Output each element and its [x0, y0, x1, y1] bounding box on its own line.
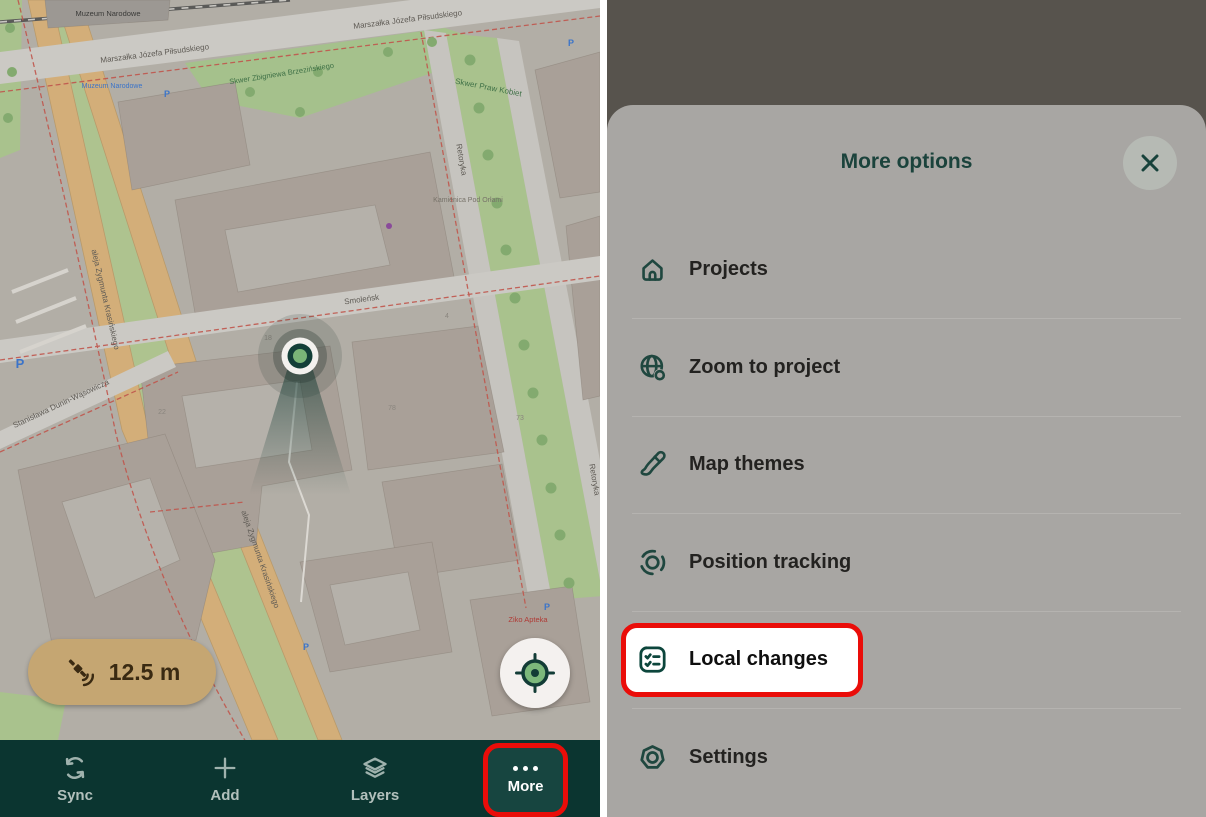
parking-icon: P [544, 602, 550, 612]
svg-text:78: 78 [388, 405, 396, 412]
tracking-icon [636, 546, 669, 579]
parking-icon: P [164, 89, 170, 99]
museum-label: Muzeum Narodowe [75, 9, 140, 18]
locate-button[interactable] [500, 638, 570, 708]
sheet-title: More options [607, 150, 1206, 174]
svg-text:73: 73 [516, 415, 524, 422]
screenshot-stage: Muzeum Narodowe Muzeum Narodowe Marszałk… [0, 0, 1206, 817]
satellite-icon [64, 656, 96, 688]
parking-icon: P [16, 356, 25, 371]
gps-accuracy-pill[interactable]: 12.5 m [28, 639, 216, 705]
gps-accuracy-value: 12.5 m [109, 659, 181, 686]
nav-label: Sync [57, 787, 93, 804]
close-button[interactable] [1123, 136, 1177, 190]
close-icon [1138, 151, 1162, 175]
menu-item-position-tracking[interactable]: Position tracking [607, 526, 1206, 598]
layers-icon [361, 754, 389, 782]
menu-item-local-changes[interactable]: Local changes [607, 623, 1206, 695]
divider [632, 708, 1181, 709]
menu-item-map-themes[interactable]: Map themes [607, 428, 1206, 500]
nav-item-layers[interactable]: Layers [300, 740, 450, 817]
parking-icon: P [568, 38, 574, 48]
checklist-icon [636, 643, 669, 676]
menu-item-zoom-to-project[interactable]: Zoom to project [607, 331, 1206, 403]
svg-text:4: 4 [445, 313, 449, 320]
museum-poi-icon [386, 223, 392, 229]
gear-icon [636, 741, 669, 774]
divider [632, 611, 1181, 612]
menu-item-label: Projects [689, 258, 768, 281]
nav-label: Add [210, 787, 239, 804]
more-options-sheet: More options Projects [607, 105, 1206, 817]
nav-item-add[interactable]: Add [150, 740, 300, 817]
poi-label: Kamienica Pod Orłami [433, 197, 503, 204]
nav-label: More [508, 778, 544, 795]
ellipsis-icon [513, 766, 538, 771]
menu-item-label: Map themes [689, 453, 805, 476]
divider [632, 318, 1181, 319]
nav-item-sync[interactable]: Sync [0, 740, 150, 817]
poi-label: Ziko Apteka [508, 615, 548, 624]
menu-item-label: Settings [689, 746, 768, 769]
more-options-screen-panel: More options Projects [607, 0, 1206, 817]
map-screen-panel: Muzeum Narodowe Muzeum Narodowe Marszałk… [0, 0, 600, 817]
crosshair-target-icon [514, 652, 556, 694]
museum-stop-label: Muzeum Narodowe [82, 83, 143, 90]
nav-item-more[interactable]: More [483, 743, 568, 817]
map-canvas[interactable]: Muzeum Narodowe Muzeum Narodowe Marszałk… [0, 0, 600, 740]
parking-icon: P [303, 642, 309, 652]
menu-item-label: Zoom to project [689, 356, 840, 379]
home-icon [636, 253, 669, 286]
plus-icon [211, 754, 239, 782]
menu-item-label: Position tracking [689, 551, 851, 574]
sync-icon [61, 754, 89, 782]
nav-label: Layers [351, 787, 399, 804]
divider [632, 416, 1181, 417]
menu-item-label: Local changes [689, 648, 828, 671]
globe-search-icon [636, 351, 669, 384]
brush-icon [636, 448, 669, 481]
divider [632, 513, 1181, 514]
menu-item-projects[interactable]: Projects [607, 233, 1206, 305]
svg-text:22: 22 [158, 409, 166, 416]
menu-item-settings[interactable]: Settings [607, 721, 1206, 793]
